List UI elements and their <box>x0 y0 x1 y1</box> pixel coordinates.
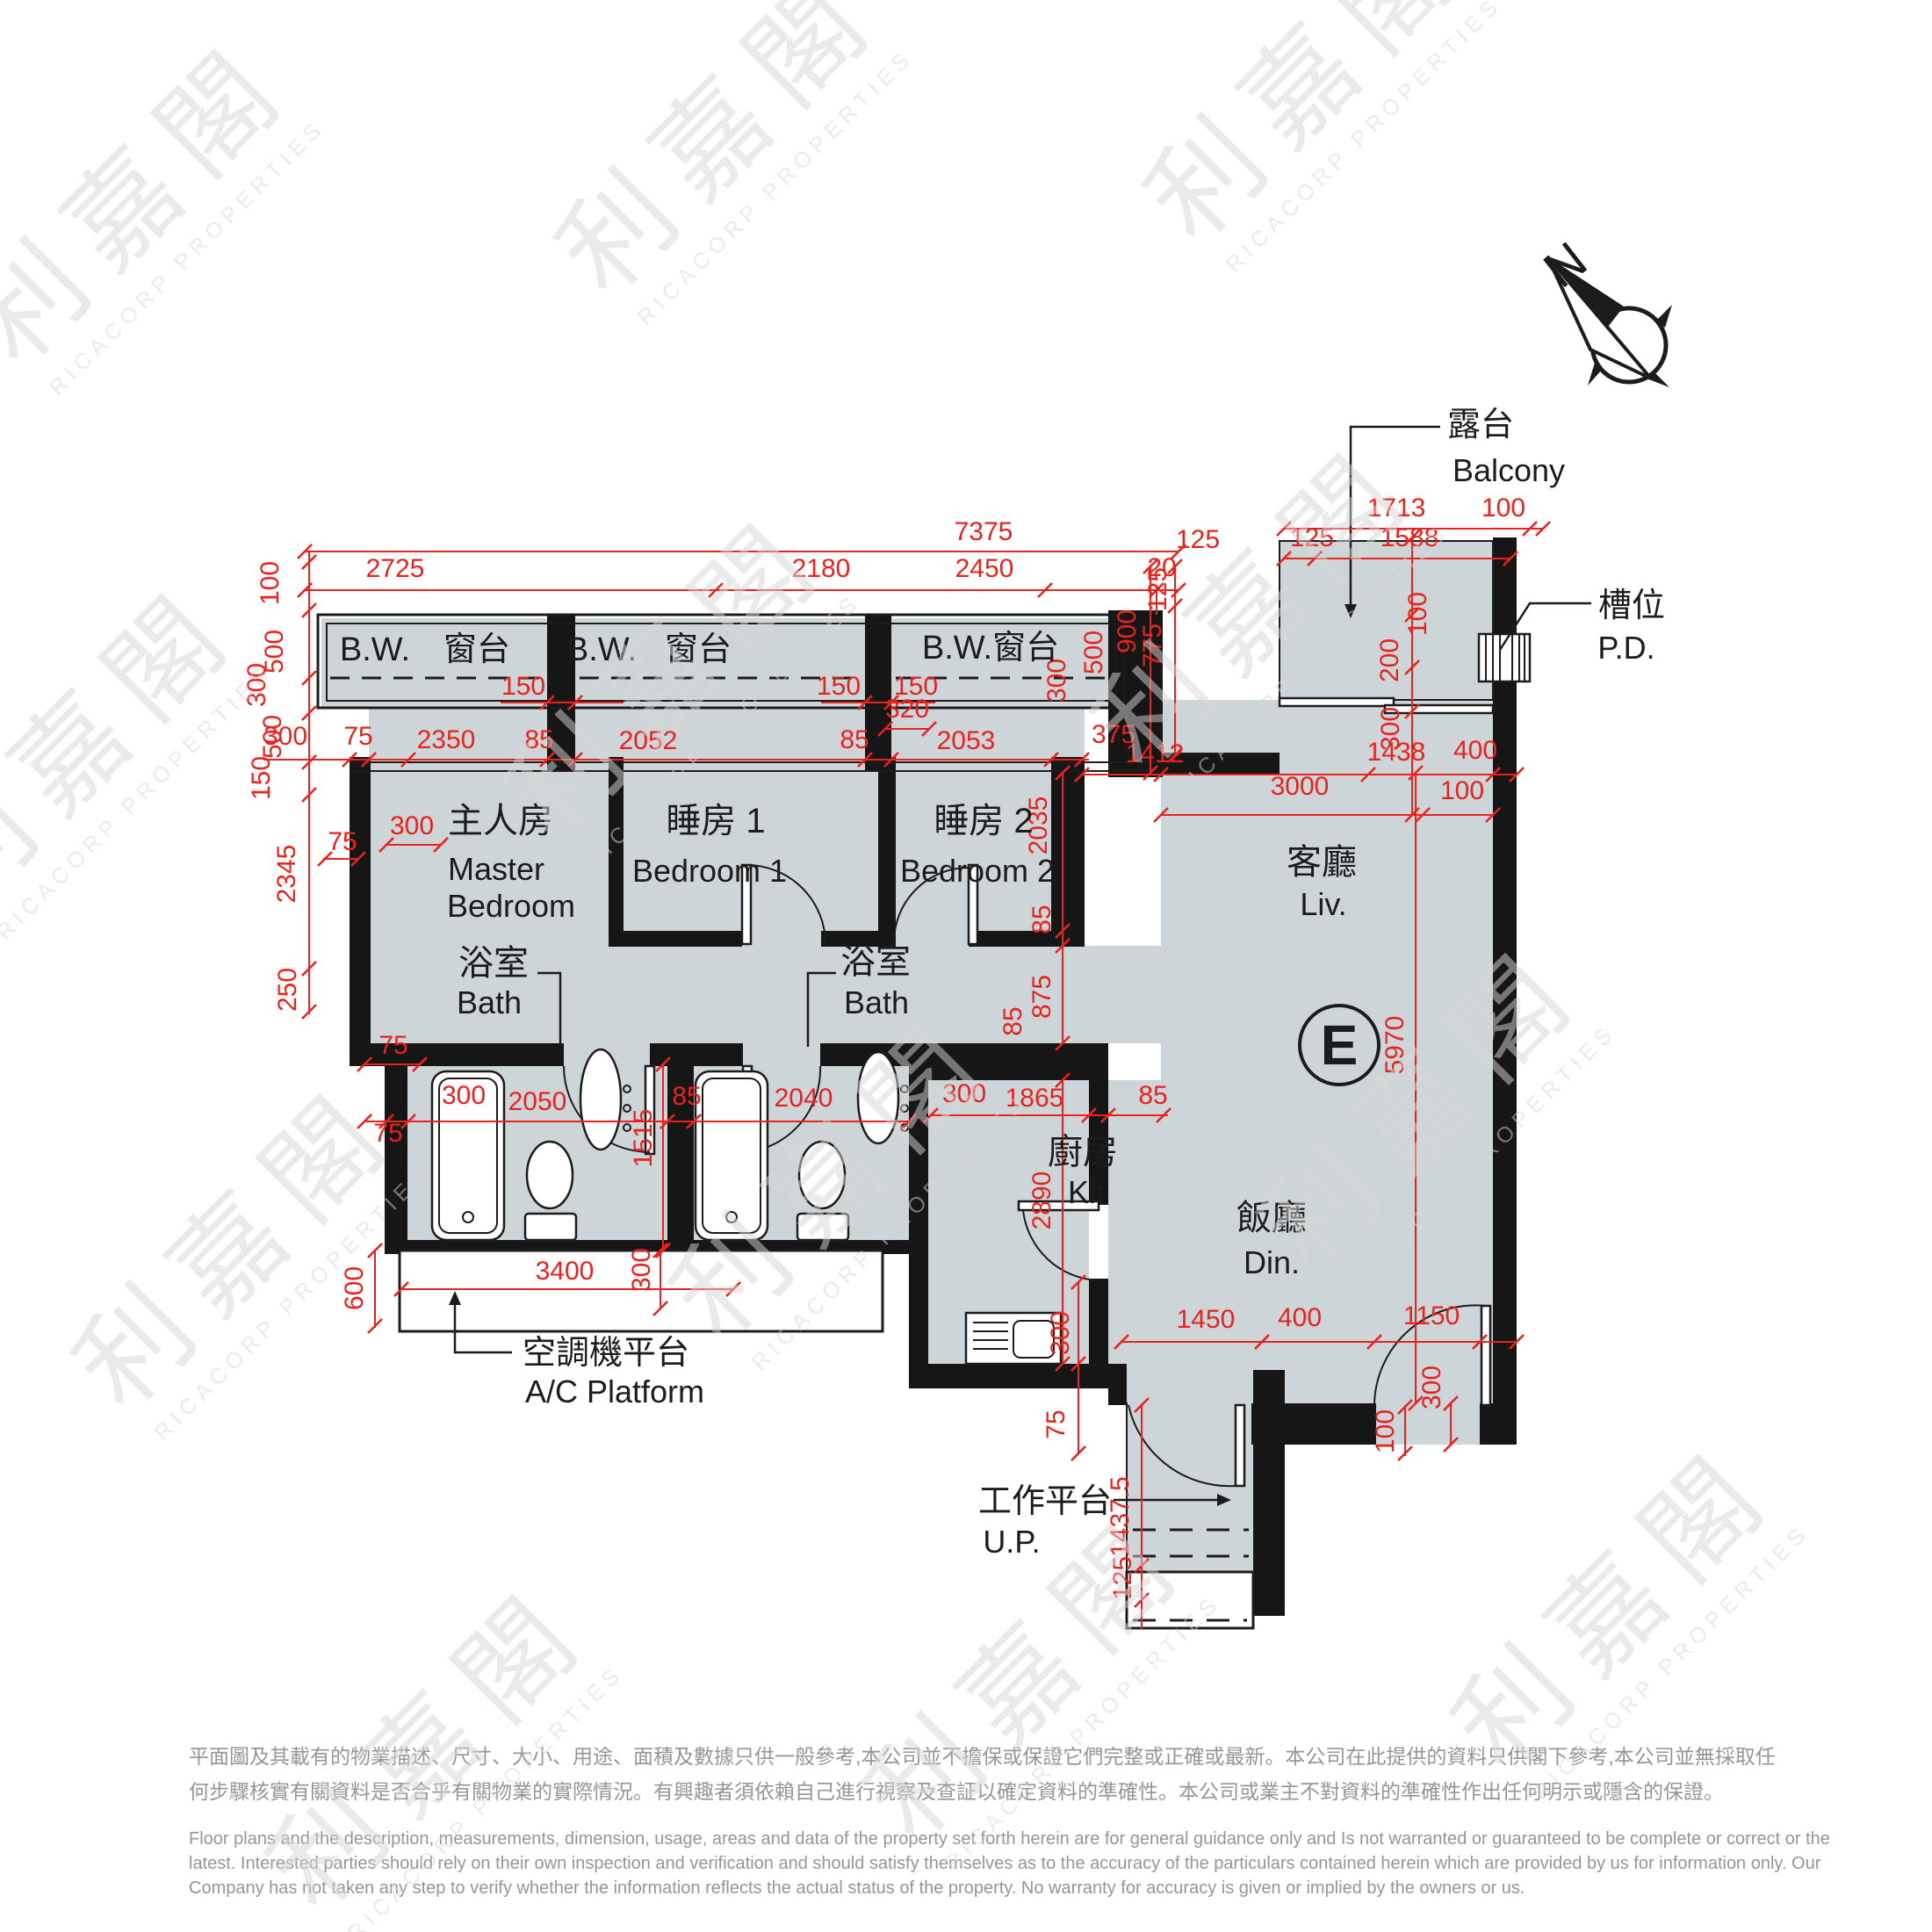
dimension-value: 200 <box>1375 638 1404 682</box>
dimension-value: 85 <box>998 1006 1027 1035</box>
dimension-value: 400 <box>1278 1303 1322 1332</box>
svg-text:利嘉閣: 利嘉閣 <box>1432 1424 1800 1791</box>
dimension-value: 150 <box>247 756 276 800</box>
dimension-value: 85 <box>672 1082 701 1111</box>
dimension-value: 500 <box>1079 631 1108 674</box>
dimension-value: 150 <box>817 672 861 701</box>
bedroom2-en-label: Bedroom 2 <box>900 853 1055 889</box>
dimension-value: 125 <box>1143 567 1172 611</box>
dimension-value: 75 <box>1042 1409 1071 1438</box>
dimension-value: 300 <box>1046 1311 1075 1355</box>
dimension-value: 100 <box>1371 1409 1400 1453</box>
compass: N <box>1533 231 1672 387</box>
floorplan-drawing: E N 露台 Balcony 槽位 P.D. 空調機平台 A/C Platfor… <box>0 0 1932 1932</box>
svg-text:利嘉閣: 利嘉閣 <box>0 563 263 931</box>
dimension-value: 7375 <box>955 517 1013 546</box>
dimension-value: 3400 <box>536 1257 595 1286</box>
dimension-value: 300 <box>442 1081 486 1110</box>
bedroom1-zh-label: 睡房 1 <box>666 802 765 840</box>
dimension-value: 2725 <box>366 554 425 583</box>
bedroom2-zh-label: 睡房 2 <box>934 802 1033 840</box>
svg-text:利嘉閣: 利嘉閣 <box>537 0 905 315</box>
entrance-door-leaf <box>1481 1306 1490 1405</box>
watermark-logo: 利嘉閣RICACORP PROPERTIES <box>54 1063 443 1453</box>
dimension-value: 75 <box>378 1031 407 1060</box>
up-label-zh: 工作平台 <box>978 1483 1112 1520</box>
watermark-logo: 利嘉閣RICACORP PROPERTIES <box>0 563 284 952</box>
bath1-en-label: Bath <box>457 984 522 1020</box>
dimension-value: 75 <box>343 722 372 751</box>
bedroom1-en-label: Bedroom 1 <box>632 853 787 889</box>
dimension-value: 2890 <box>1027 1171 1056 1230</box>
kitchen-en-label: Kit <box>1068 1174 1105 1210</box>
living-en-label: Liv. <box>1300 886 1346 922</box>
pd-label-zh: 槽位 <box>1598 588 1665 624</box>
dimension-value: 100 <box>1440 776 1484 805</box>
bay-window-1-win-label: 窗台 <box>443 631 510 668</box>
dimension-value: 2450 <box>955 554 1014 583</box>
dimension-value: 300 <box>1376 707 1405 751</box>
svg-text:利嘉閣: 利嘉閣 <box>1125 0 1493 263</box>
bay-window-3-label: B.W.窗台 <box>922 630 1059 667</box>
dimension-value: 100 <box>1403 592 1432 636</box>
bay-window-1-bw-label: B.W. <box>340 631 410 668</box>
dimension-value: 3000 <box>1271 772 1330 801</box>
dimension-value: 100 <box>256 561 285 605</box>
dimension-value: 300 <box>390 811 434 840</box>
master-bedroom-en1-label: Master <box>448 851 544 887</box>
toilet-1 <box>527 1142 573 1208</box>
up-door-leaf <box>1236 1405 1244 1486</box>
bath1-zh-label: 浴室 <box>458 944 529 983</box>
floorplan-page: E N 露台 Balcony 槽位 P.D. 空調機平台 A/C Platfor… <box>0 0 1932 1932</box>
watermark-logo: 利嘉閣RICACORP PROPERTIES <box>537 0 926 336</box>
dimension-value: 320 <box>885 695 929 724</box>
kitchen-zh-label: 廚房 <box>1048 1133 1118 1171</box>
unit-label: E <box>1321 1013 1359 1077</box>
balcony-label-zh: 露台 <box>1447 407 1514 443</box>
dimension-value: 600 <box>340 1266 369 1310</box>
dimension-value: 1515 <box>629 1109 658 1168</box>
master-bedroom-en2-label: Bedroom <box>447 888 575 924</box>
svg-text:利嘉閣: 利嘉閣 <box>0 18 315 386</box>
dimension-value: 125 <box>1176 525 1220 554</box>
bath2-zh-label: 浴室 <box>840 942 911 981</box>
dimension-value: 400 <box>1453 736 1497 765</box>
dimension-value: 85 <box>1138 1081 1167 1110</box>
dimension-value: 300 <box>263 722 307 751</box>
dimension-value: 150 <box>501 672 545 701</box>
pd-label-en: P.D. <box>1597 630 1654 666</box>
living-zh-label: 客廳 <box>1287 843 1357 882</box>
dimension-value: 100 <box>1481 494 1525 523</box>
dimension-value: 250 <box>273 968 302 1012</box>
up-label-en: U.P. <box>983 1524 1040 1560</box>
ac-label-zh: 空調機平台 <box>523 1335 689 1372</box>
ac-label-en: A/C Platform <box>525 1373 704 1409</box>
dimension-value: 2350 <box>417 725 476 754</box>
dimension-value: 85 <box>840 725 869 754</box>
dimension-value: 2050 <box>508 1087 567 1116</box>
balcony-label-en: Balcony <box>1453 452 1565 488</box>
dimension-value: 300 <box>627 1248 656 1292</box>
watermark-logo: 利嘉閣RICACORP PROPERTIES <box>1125 0 1514 284</box>
dimension-value: 2053 <box>937 726 996 755</box>
dimension-value: 875 <box>1027 975 1056 1019</box>
dimension-value: 1450 <box>1177 1305 1236 1334</box>
dimension-value: 2345 <box>272 845 301 904</box>
watermark-logo: 利嘉閣RICACORP PROPERTIES <box>0 18 336 407</box>
dimension-value: 300 <box>1417 1366 1446 1409</box>
dimension-value: 85 <box>1027 905 1056 934</box>
dimension-value: 75 <box>328 827 357 856</box>
svg-text:利嘉閣: 利嘉閣 <box>54 1063 422 1431</box>
basin-1 <box>580 1049 621 1150</box>
bath2-en-label: Bath <box>844 984 909 1020</box>
dimension-value: 1150 <box>1403 1301 1460 1330</box>
